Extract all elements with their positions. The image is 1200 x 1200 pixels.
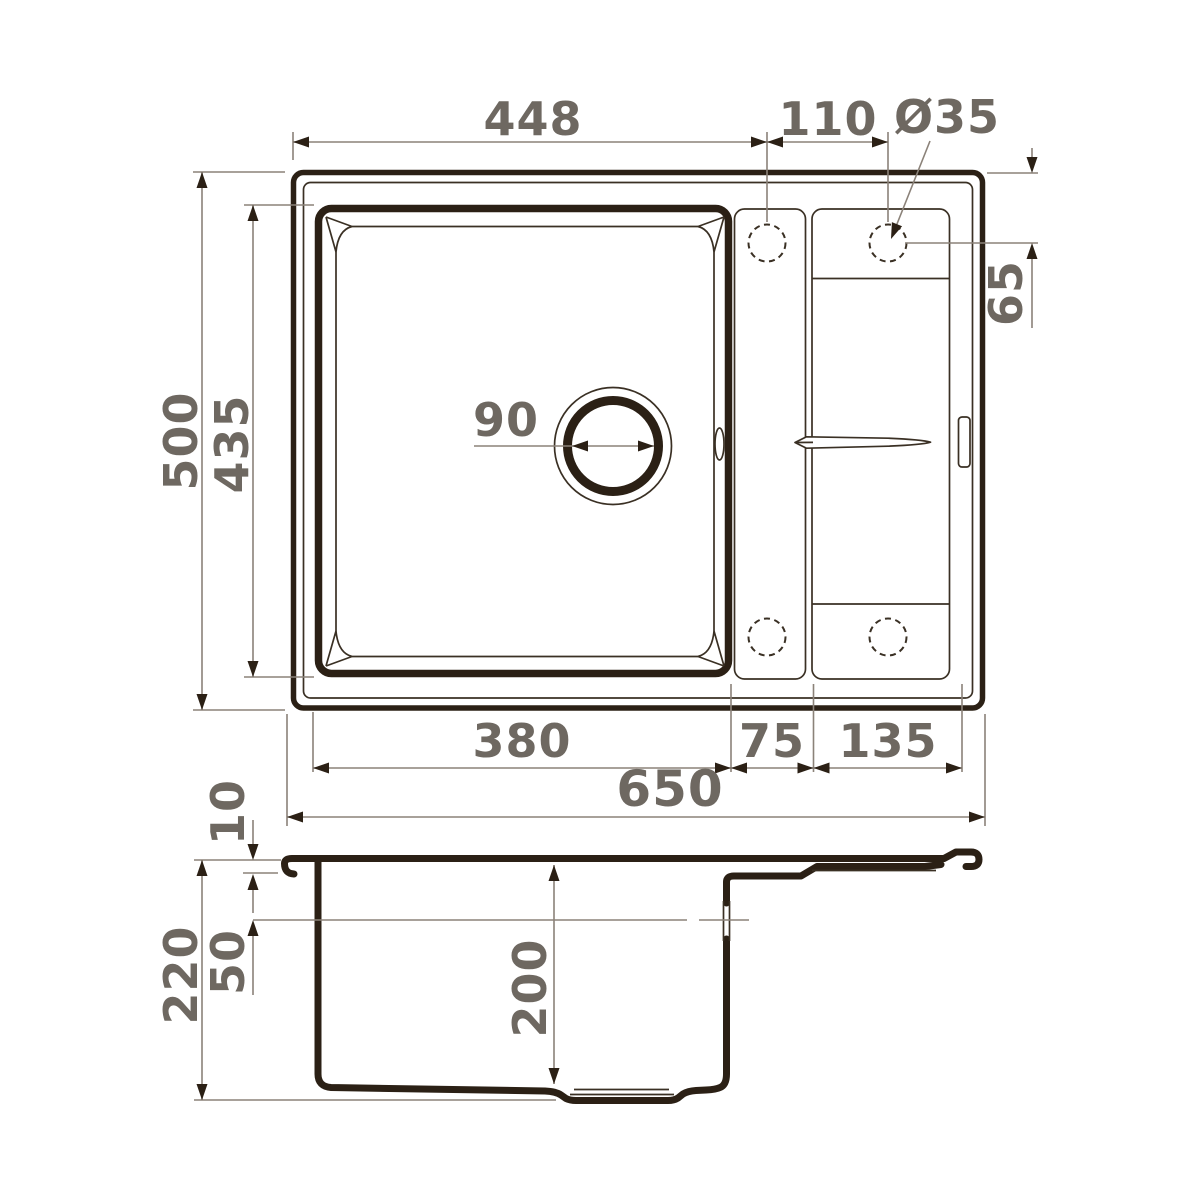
dim-hole-offset: 65 xyxy=(979,260,1033,326)
sink-technical-drawing: 448 110 Ø35 65 500 435 90 380 75 xyxy=(0,0,1200,1200)
section-overflow-passage xyxy=(724,901,730,941)
dim-overall-height: 220 xyxy=(154,925,208,1024)
dim-drainboard-width: 135 xyxy=(838,714,937,768)
faucet-hole xyxy=(749,619,786,656)
overflow-slot xyxy=(715,428,724,460)
top-view xyxy=(294,173,983,709)
dim-overall-width: 650 xyxy=(616,760,723,818)
dim-hole-spacing: 110 xyxy=(778,92,877,146)
section-view xyxy=(253,852,979,1101)
dim-overflow-depth: 50 xyxy=(201,929,255,995)
dim-bowl-length: 435 xyxy=(205,394,259,493)
dim-rim-thickness: 10 xyxy=(201,779,255,845)
dim-ledge-width: 75 xyxy=(739,714,805,768)
side-rail xyxy=(959,417,971,467)
dim-edge-to-hole: 448 xyxy=(483,92,582,146)
dim-overall-depth: 500 xyxy=(154,391,208,490)
faucet-hole xyxy=(749,225,786,262)
dim-hole-diameter: Ø35 xyxy=(894,90,1000,144)
top-view-dimensions: 448 110 Ø35 65 500 435 90 380 75 xyxy=(154,90,1038,826)
drainboard-groove xyxy=(795,437,931,448)
ledge-strip xyxy=(735,209,806,679)
dim-bowl-depth: 200 xyxy=(503,938,557,1037)
section-view-dimensions: 10 50 220 200 xyxy=(154,779,559,1100)
section-drain-flange xyxy=(570,1090,674,1095)
dim-bowl-width: 380 xyxy=(472,714,571,768)
dim-drain-diameter: 90 xyxy=(473,393,539,447)
faucet-hole xyxy=(870,225,907,262)
technical-drawing-page: 448 110 Ø35 65 500 435 90 380 75 xyxy=(0,0,1200,1200)
faucet-hole xyxy=(870,619,907,656)
